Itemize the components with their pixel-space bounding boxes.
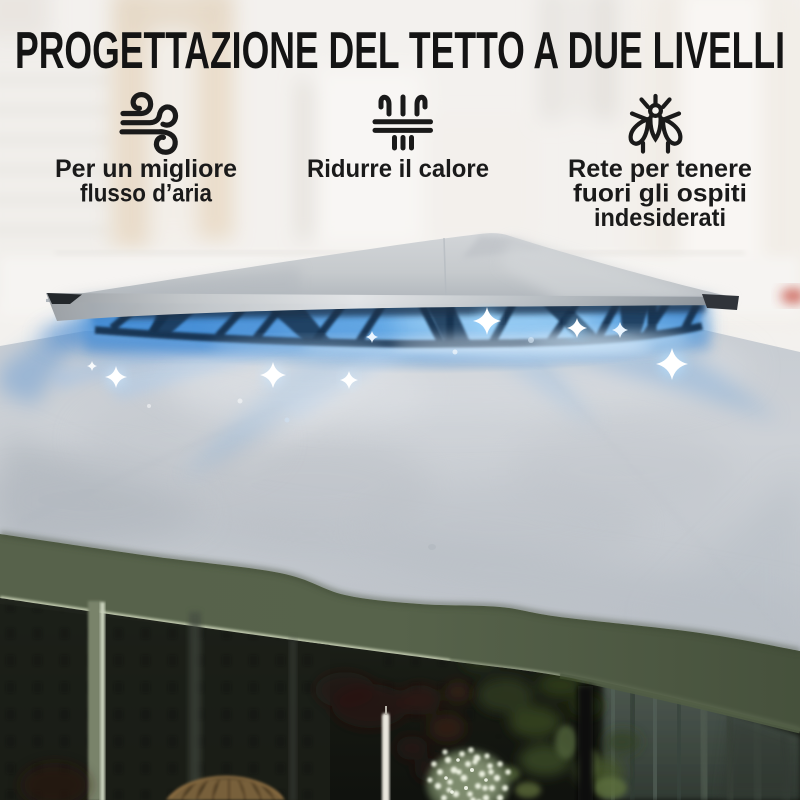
svg-text:indesiderati: indesiderati <box>594 204 726 232</box>
svg-text:PROGETTAZIONE DEL TETTO A DUE: PROGETTAZIONE DEL TETTO A DUE LIVELLI <box>15 22 785 80</box>
svg-text:Ridurre il calore: Ridurre il calore <box>307 155 489 183</box>
svg-text:flusso d’aria: flusso d’aria <box>80 180 213 208</box>
